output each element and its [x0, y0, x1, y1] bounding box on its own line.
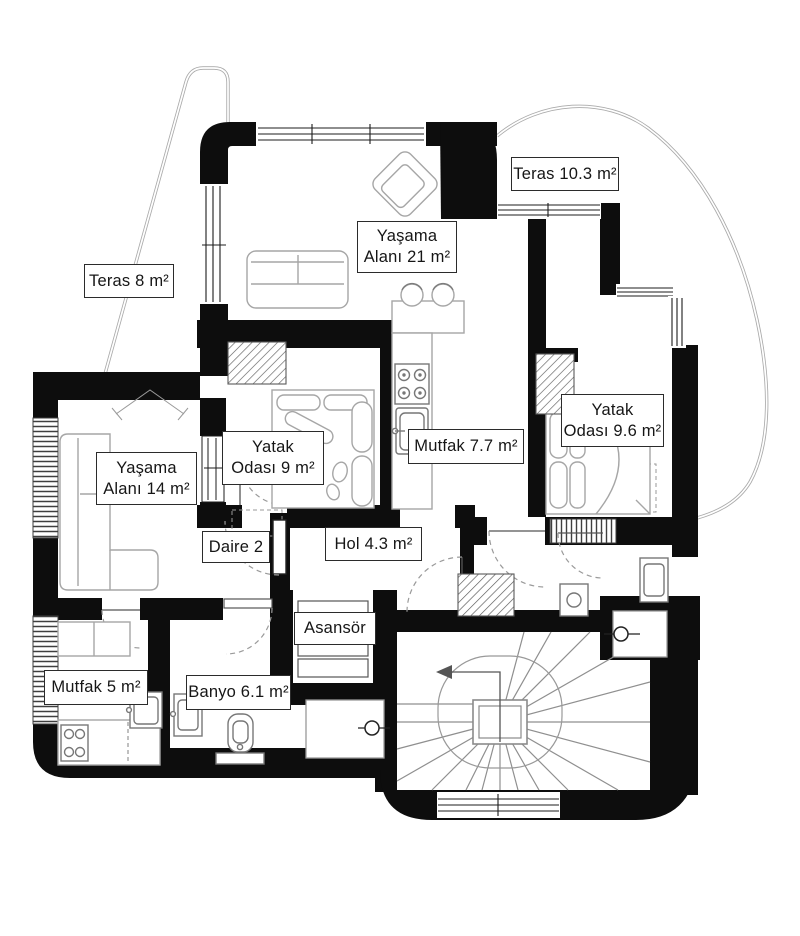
room-label-yatak-9-6: Yatak Odası 9.6 m²	[561, 394, 664, 447]
room-label-banyo: Banyo 6.1 m²	[186, 675, 291, 710]
room-label-text: Teras 8 m²	[89, 271, 169, 292]
room-label-text: Odası 9.6 m²	[564, 421, 662, 442]
room-label-text: Banyo 6.1 m²	[188, 682, 289, 703]
window-terrace-corner	[668, 296, 686, 348]
window-partition-living-bedroom	[202, 436, 224, 502]
room-label-text: Odası 9 m²	[231, 458, 315, 479]
room-label-text: Mutfak 5 m²	[51, 677, 140, 698]
window-bedroom-south	[550, 519, 616, 543]
room-label-text: Yatak	[252, 437, 294, 458]
room-label-text: Mutfak 7.7 m²	[414, 436, 517, 457]
room-label-text: Yaşama	[377, 226, 438, 247]
room-label-text: Teras 10.3 m²	[513, 164, 616, 185]
window-terrace-east	[616, 284, 674, 300]
room-label-asansor: Asansör	[294, 612, 376, 645]
room-label-teras-10-3: Teras 10.3 m²	[511, 157, 619, 191]
room-label-text: Yaşama	[116, 458, 177, 479]
window-stair-bottom	[437, 792, 560, 818]
room-label-yatak-9: Yatak Odası 9 m²	[222, 431, 324, 485]
water-heater-symbol	[560, 584, 588, 616]
window-top	[256, 122, 426, 146]
room-label-yasama-14: Yaşama Alanı 14 m²	[96, 452, 197, 505]
room-label-text: Yatak	[592, 400, 634, 421]
armchair-symbol	[370, 149, 441, 220]
toilet-symbol	[216, 714, 264, 764]
room-label-text: Alanı 14 m²	[103, 479, 190, 500]
sofa-symbol-living-21	[247, 251, 348, 308]
window-left-upper	[33, 418, 58, 538]
room-label-daire-2: Daire 2	[202, 531, 270, 563]
wardrobe-symbol-middle	[228, 342, 286, 384]
window-terrace-south	[497, 201, 601, 219]
floor-plan-page: Teras 10.3 m² Yaşama Alanı 21 m² Teras 8…	[0, 0, 800, 936]
room-label-mutfak-5: Mutfak 5 m²	[44, 670, 148, 705]
stove-symbol	[395, 364, 429, 404]
stove-symbol-kitchen5	[61, 725, 88, 761]
wardrobe-symbol-hall	[458, 574, 514, 616]
room-label-text: Hol 4.3 m²	[334, 534, 412, 555]
door-stair-lobby	[407, 557, 462, 612]
room-label-mutfak-7-7: Mutfak 7.7 m²	[408, 429, 524, 464]
bar-counter-symbol	[392, 284, 464, 333]
room-label-yasama-21: Yaşama Alanı 21 m²	[357, 221, 457, 273]
room-label-hol: Hol 4.3 m²	[325, 527, 422, 561]
room-label-text: Daire 2	[209, 537, 264, 558]
room-label-teras-8: Teras 8 m²	[84, 264, 174, 298]
window-top-left	[200, 184, 228, 304]
sink-symbol-right-wall	[640, 558, 668, 602]
door-banyo	[224, 599, 272, 654]
room-label-text: Alanı 21 m²	[364, 247, 451, 268]
room-label-text: Asansör	[304, 618, 366, 639]
